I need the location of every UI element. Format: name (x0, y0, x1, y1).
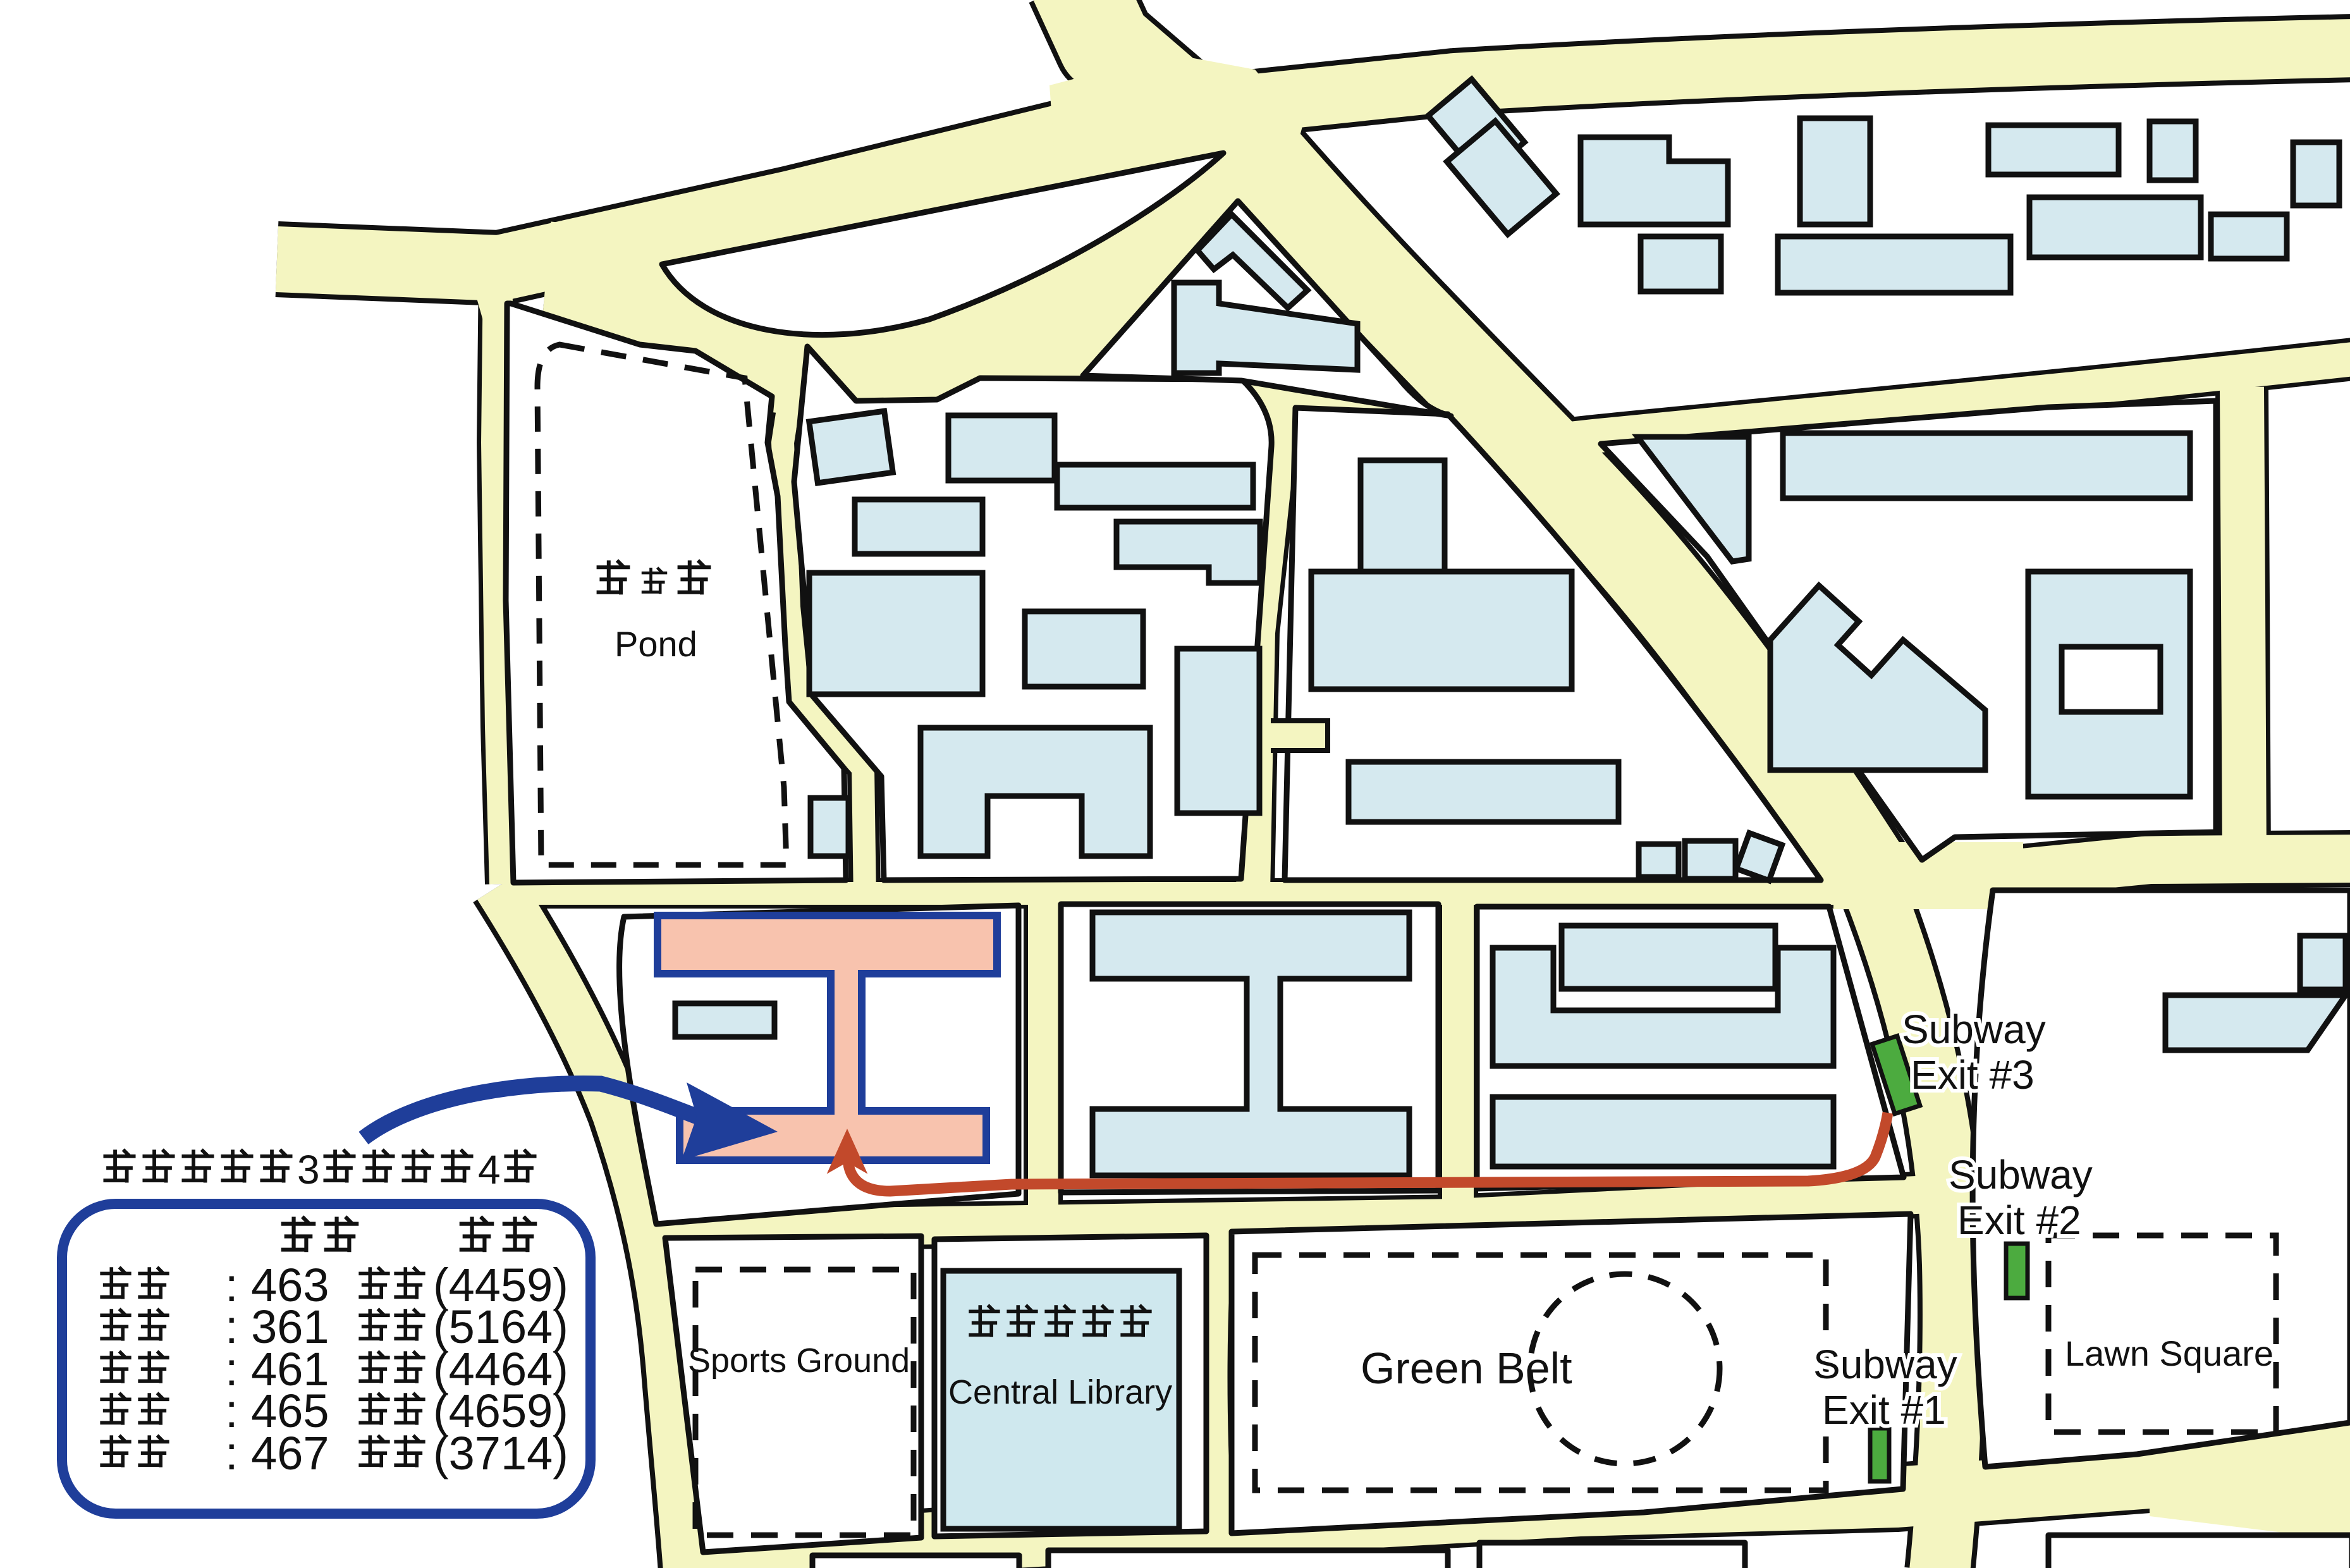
svg-text:: 467: : 467 (225, 1427, 329, 1479)
svg-text:Green Belt: Green Belt (1361, 1344, 1572, 1393)
svg-text:Central Library: Central Library (948, 1373, 1172, 1411)
svg-text:Subway: Subway (1902, 1007, 2046, 1052)
svg-text:3: 3 (297, 1147, 320, 1192)
svg-text:4: 4 (478, 1147, 501, 1192)
svg-text:Exit #2: Exit #2 (1957, 1197, 2081, 1243)
svg-text:Exit #3: Exit #3 (1911, 1052, 2035, 1098)
svg-text:Sports Ground: Sports Ground (688, 1342, 910, 1380)
svg-text:Exit #1: Exit #1 (1822, 1387, 1946, 1433)
svg-text:(3714): (3714) (433, 1427, 568, 1479)
svg-text:Subway: Subway (1949, 1152, 2093, 1197)
svg-text:Subway: Subway (1813, 1342, 1957, 1387)
svg-text:Pond: Pond (615, 624, 697, 664)
svg-text:Lawn Square: Lawn Square (2065, 1333, 2274, 1373)
